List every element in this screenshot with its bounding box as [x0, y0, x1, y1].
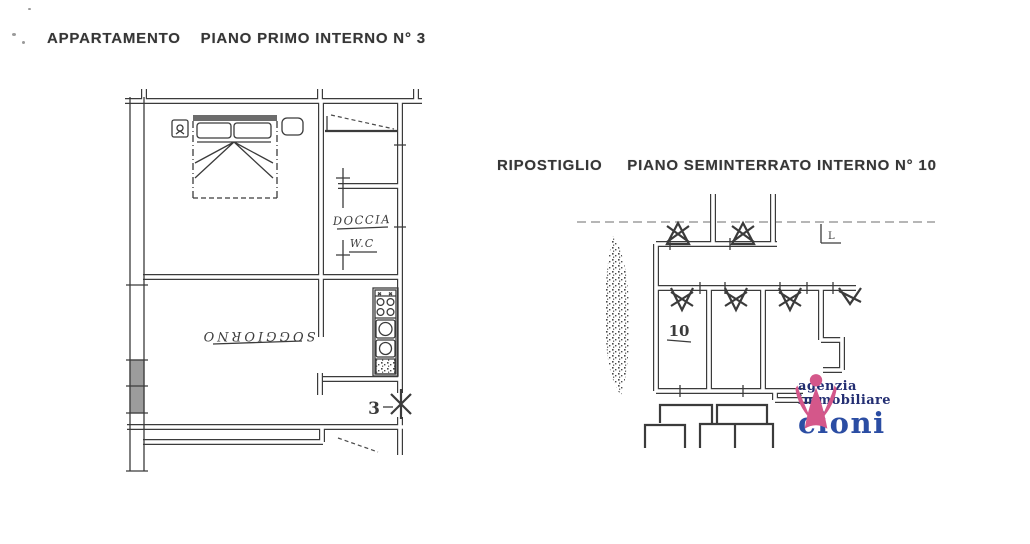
lower-wall-fragments: [645, 405, 773, 448]
landing-door-swing: [338, 438, 378, 452]
storage-unit-underline: [667, 340, 691, 342]
corner-letter: L: [828, 231, 835, 242]
nightstand-right: [282, 118, 303, 135]
left-outer-wall: [126, 97, 148, 471]
nightstand-left: [172, 120, 188, 137]
storage-title: RIPOSTIGLIO PIANO SEMINTERRATO INTERNO N…: [497, 157, 937, 174]
wc-label: W.C: [350, 237, 374, 250]
terrain-hatch: [605, 236, 630, 395]
door-number-label: 3: [368, 399, 380, 419]
scanned-floorplan-page: APPARTAMENTO PIANO PRIMO INTERNO N° 3 RI…: [0, 0, 1030, 544]
entry-door-swing: [325, 115, 397, 131]
double-bed: [193, 115, 277, 198]
agency-logo: agenzia immobiliare cioni: [793, 372, 973, 446]
entrance-door-mark: [383, 389, 411, 419]
kitchenette: [373, 288, 398, 376]
apartment-floorplan: DOCCIA W.C SOGGIORNO 3: [110, 85, 445, 487]
apartment-title: APPARTAMENTO PIANO PRIMO INTERNO N° 3: [47, 30, 426, 47]
doccia-label: DOCCIA: [332, 212, 392, 228]
storage-unit-label: 10: [669, 322, 690, 340]
agency-logo-figure-icon: [793, 372, 839, 436]
